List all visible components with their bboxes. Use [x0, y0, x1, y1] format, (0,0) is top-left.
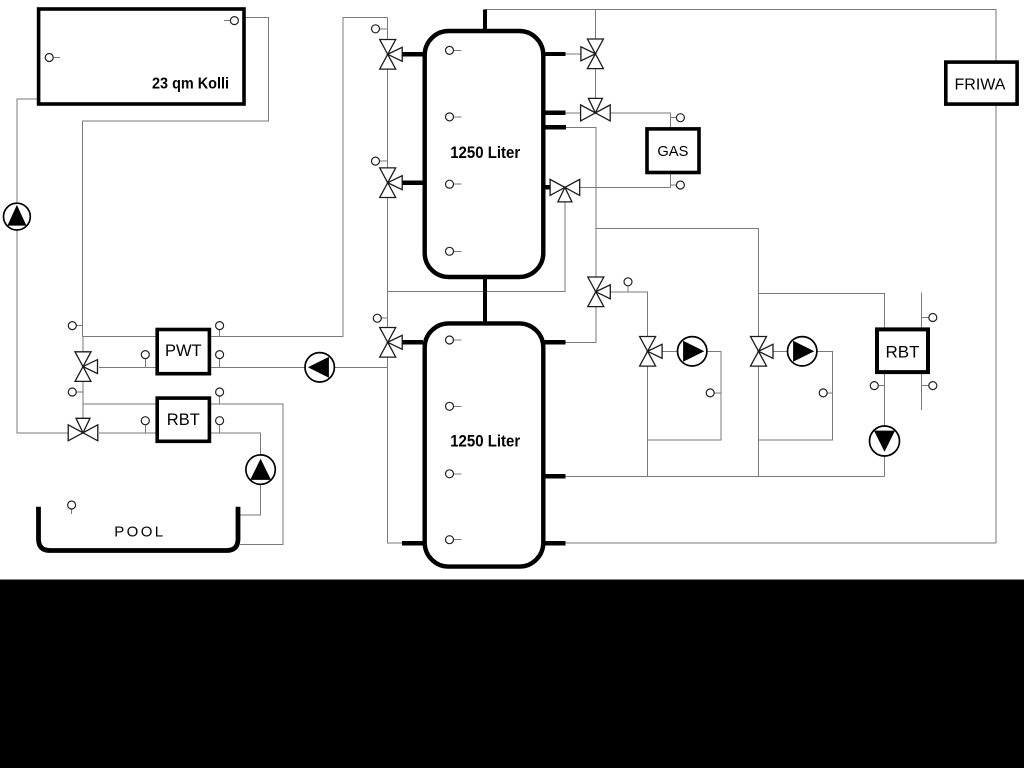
- svg-text:23 qm Kolli: 23 qm Kolli: [152, 76, 229, 93]
- svg-text:POOL: POOL: [114, 523, 165, 540]
- svg-text:GAS: GAS: [657, 143, 688, 160]
- svg-text:1250 Liter: 1250 Liter: [450, 143, 520, 162]
- svg-text:1250 Liter: 1250 Liter: [450, 432, 520, 451]
- svg-text:PWT: PWT: [165, 342, 202, 360]
- svg-text:FRIWA: FRIWA: [955, 77, 1006, 94]
- svg-text:RBT: RBT: [167, 411, 200, 429]
- svg-text:RBT: RBT: [886, 343, 920, 362]
